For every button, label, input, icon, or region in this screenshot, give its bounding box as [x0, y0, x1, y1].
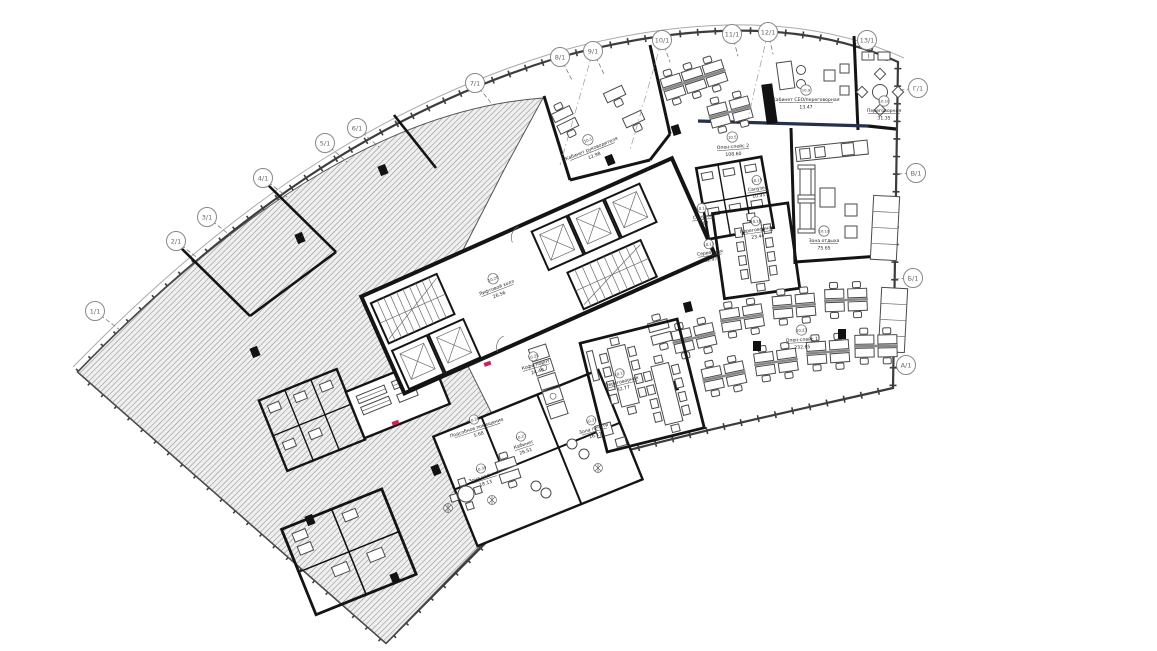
axis-bubble: 3/1 — [198, 208, 232, 237]
svg-text:10.19: 10.19 — [819, 229, 830, 234]
floor-plan-canvas: 1/1 2/1 3/1 4/1 5/1 6/1 7/1 8/1 9/1 10/1… — [0, 0, 1157, 651]
svg-text:232.65: 232.65 — [794, 344, 810, 351]
svg-text:108.60: 108.60 — [725, 151, 742, 158]
svg-text:Б/1: Б/1 — [908, 275, 919, 283]
svg-text:75.65: 75.65 — [817, 246, 830, 252]
svg-text:10.10: 10.10 — [879, 99, 890, 104]
axis-bubble: В/1 — [898, 164, 926, 183]
svg-text:13/1: 13/1 — [860, 37, 875, 45]
svg-text:Зона отдыха: Зона отдыха — [809, 238, 840, 244]
axis-bubble: 2/1 — [167, 232, 201, 261]
svg-text:6/1: 6/1 — [352, 125, 362, 133]
svg-text:9/1: 9/1 — [588, 48, 598, 56]
svg-text:8/1: 8/1 — [555, 54, 565, 62]
svg-text:5/1: 5/1 — [320, 140, 330, 148]
svg-text:4/1: 4/1 — [258, 175, 268, 183]
svg-text:2/1: 2/1 — [171, 238, 181, 246]
svg-text:12/1: 12/1 — [761, 29, 776, 37]
svg-text:10.5: 10.5 — [728, 134, 737, 140]
svg-text:А/1: А/1 — [901, 362, 912, 370]
svg-text:В/1: В/1 — [911, 170, 922, 178]
axis-bubble: 1/1 — [86, 302, 121, 331]
svg-text:3/1: 3/1 — [202, 214, 212, 222]
svg-text:1/1: 1/1 — [90, 308, 100, 316]
svg-text:31.35: 31.35 — [877, 116, 890, 122]
svg-text:10/1: 10/1 — [655, 37, 670, 45]
floor-plan-page: { "drawing": { "type": "architectural-fl… — [0, 0, 1157, 651]
axis-bubble: 4/1 — [254, 169, 288, 198]
axis-bubble: А/1 — [892, 356, 916, 375]
svg-text:10.23: 10.23 — [796, 327, 808, 333]
svg-text:13.47: 13.47 — [799, 105, 812, 111]
axis-bubble: Г/1 — [900, 79, 928, 98]
axis-bubble: Б/1 — [896, 269, 923, 288]
svg-text:Г/1: Г/1 — [913, 85, 923, 93]
svg-text:10.9: 10.9 — [802, 88, 811, 93]
svg-text:7/1: 7/1 — [470, 80, 480, 88]
svg-text:Кабинет СЕО/переговорная: Кабинет СЕО/переговорная — [773, 97, 840, 103]
svg-text:11/1: 11/1 — [725, 31, 740, 39]
svg-text:Переговорная: Переговорная — [867, 108, 901, 114]
